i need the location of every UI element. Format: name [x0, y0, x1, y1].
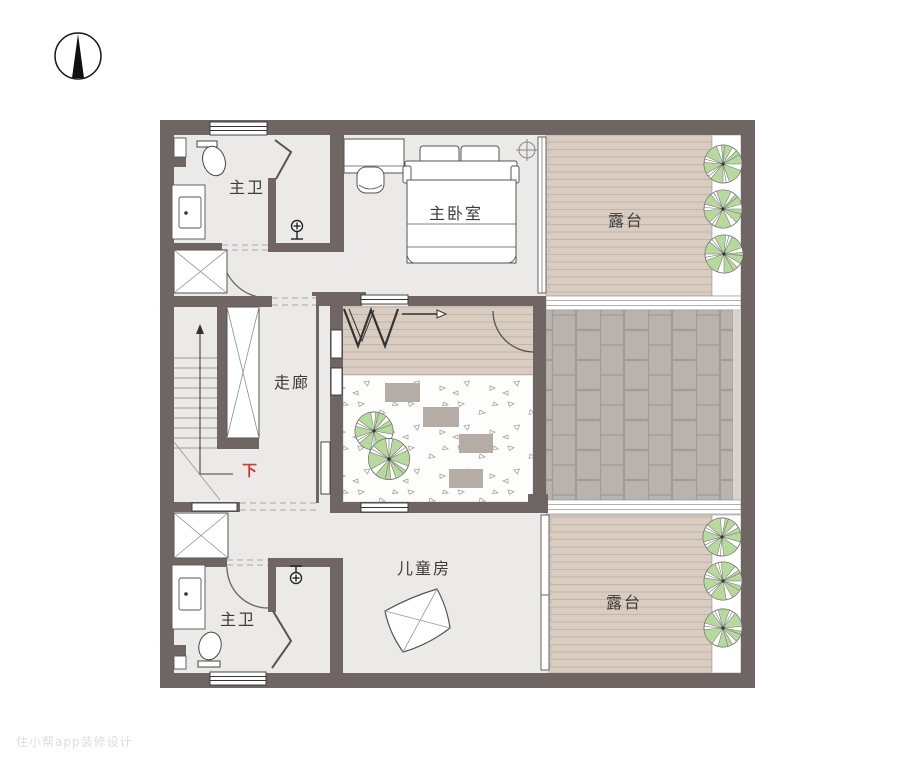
- room-label-corridor: 走廊: [274, 369, 310, 393]
- room-label-kids-room: 儿童房: [397, 555, 451, 579]
- pillow-icon: [461, 146, 499, 163]
- north-compass-icon: [55, 33, 101, 79]
- sink-icon: [172, 185, 205, 239]
- room-label-terrace-top: 露台: [608, 207, 644, 231]
- room-label-master-bath-top: 主卫: [229, 174, 265, 198]
- watermark: 住小帮app装修设计: [16, 733, 133, 750]
- pillow-icon: [420, 146, 459, 163]
- floor-plan-page: 主卫 主卧室 露台 走廊 下 儿童房 露台 主卫 住小帮app装修设计: [0, 0, 900, 770]
- tiled-roof-area: [546, 296, 741, 514]
- stair-direction-label: 下: [242, 460, 258, 481]
- floor-plan-svg: [0, 0, 900, 770]
- room-label-master-bedroom: 主卧室: [429, 200, 483, 224]
- sink-icon: [172, 565, 205, 629]
- room-label-master-bath-bottom: 主卫: [220, 606, 256, 630]
- room-label-terrace-bottom: 露台: [606, 589, 642, 613]
- courtyard: [343, 306, 534, 502]
